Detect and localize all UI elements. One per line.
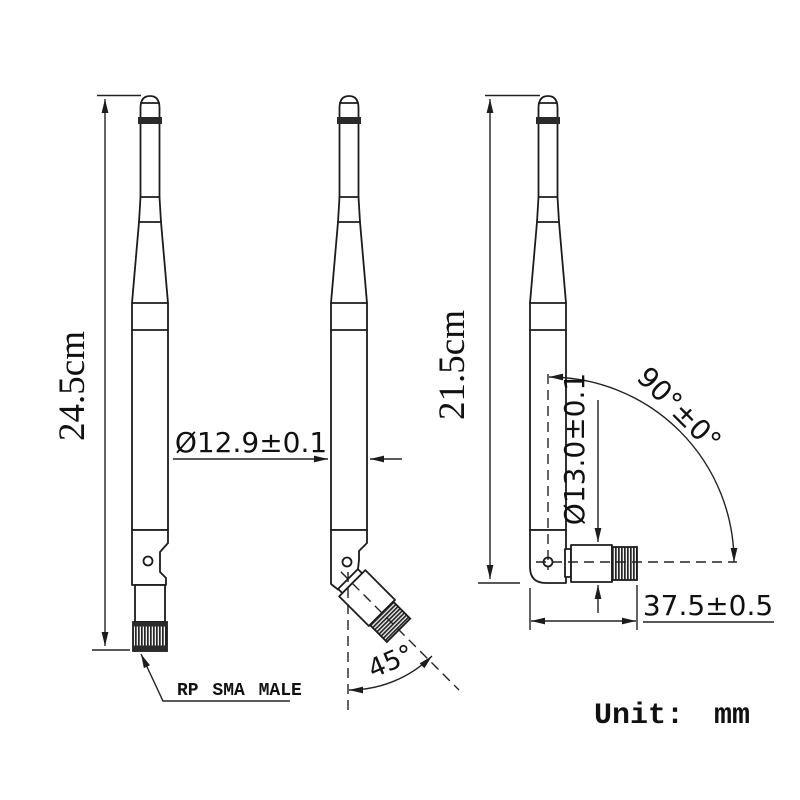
height-label: 24.5cm — [52, 331, 93, 441]
connector-label: RP SMA MALE — [177, 681, 302, 701]
antenna-dimension-drawing: 24.5cm RP SMA MALE 45° Ø12.9±0.1 — [0, 0, 800, 800]
connector-body — [135, 585, 165, 622]
unit-note: Unit: mm — [594, 699, 750, 733]
height-label: 21.5cm — [432, 310, 473, 420]
diameter-label: Ø12.9±0.1 — [175, 426, 327, 459]
knurl-top-band — [133, 622, 167, 627]
connector-width-label: 37.5±0.5 — [643, 589, 773, 622]
connector-diameter-label: Ø13.0±0.1 — [558, 373, 591, 525]
connector-body — [571, 545, 612, 582]
connector-knurl — [612, 547, 637, 580]
hinge-pivot-hole — [144, 557, 153, 566]
technical-drawing-canvas: 24.5cm RP SMA MALE 45° Ø12.9±0.1 — [0, 0, 800, 800]
hinge-pivot-hole — [343, 558, 352, 567]
knurl-bottom-band — [133, 646, 167, 652]
